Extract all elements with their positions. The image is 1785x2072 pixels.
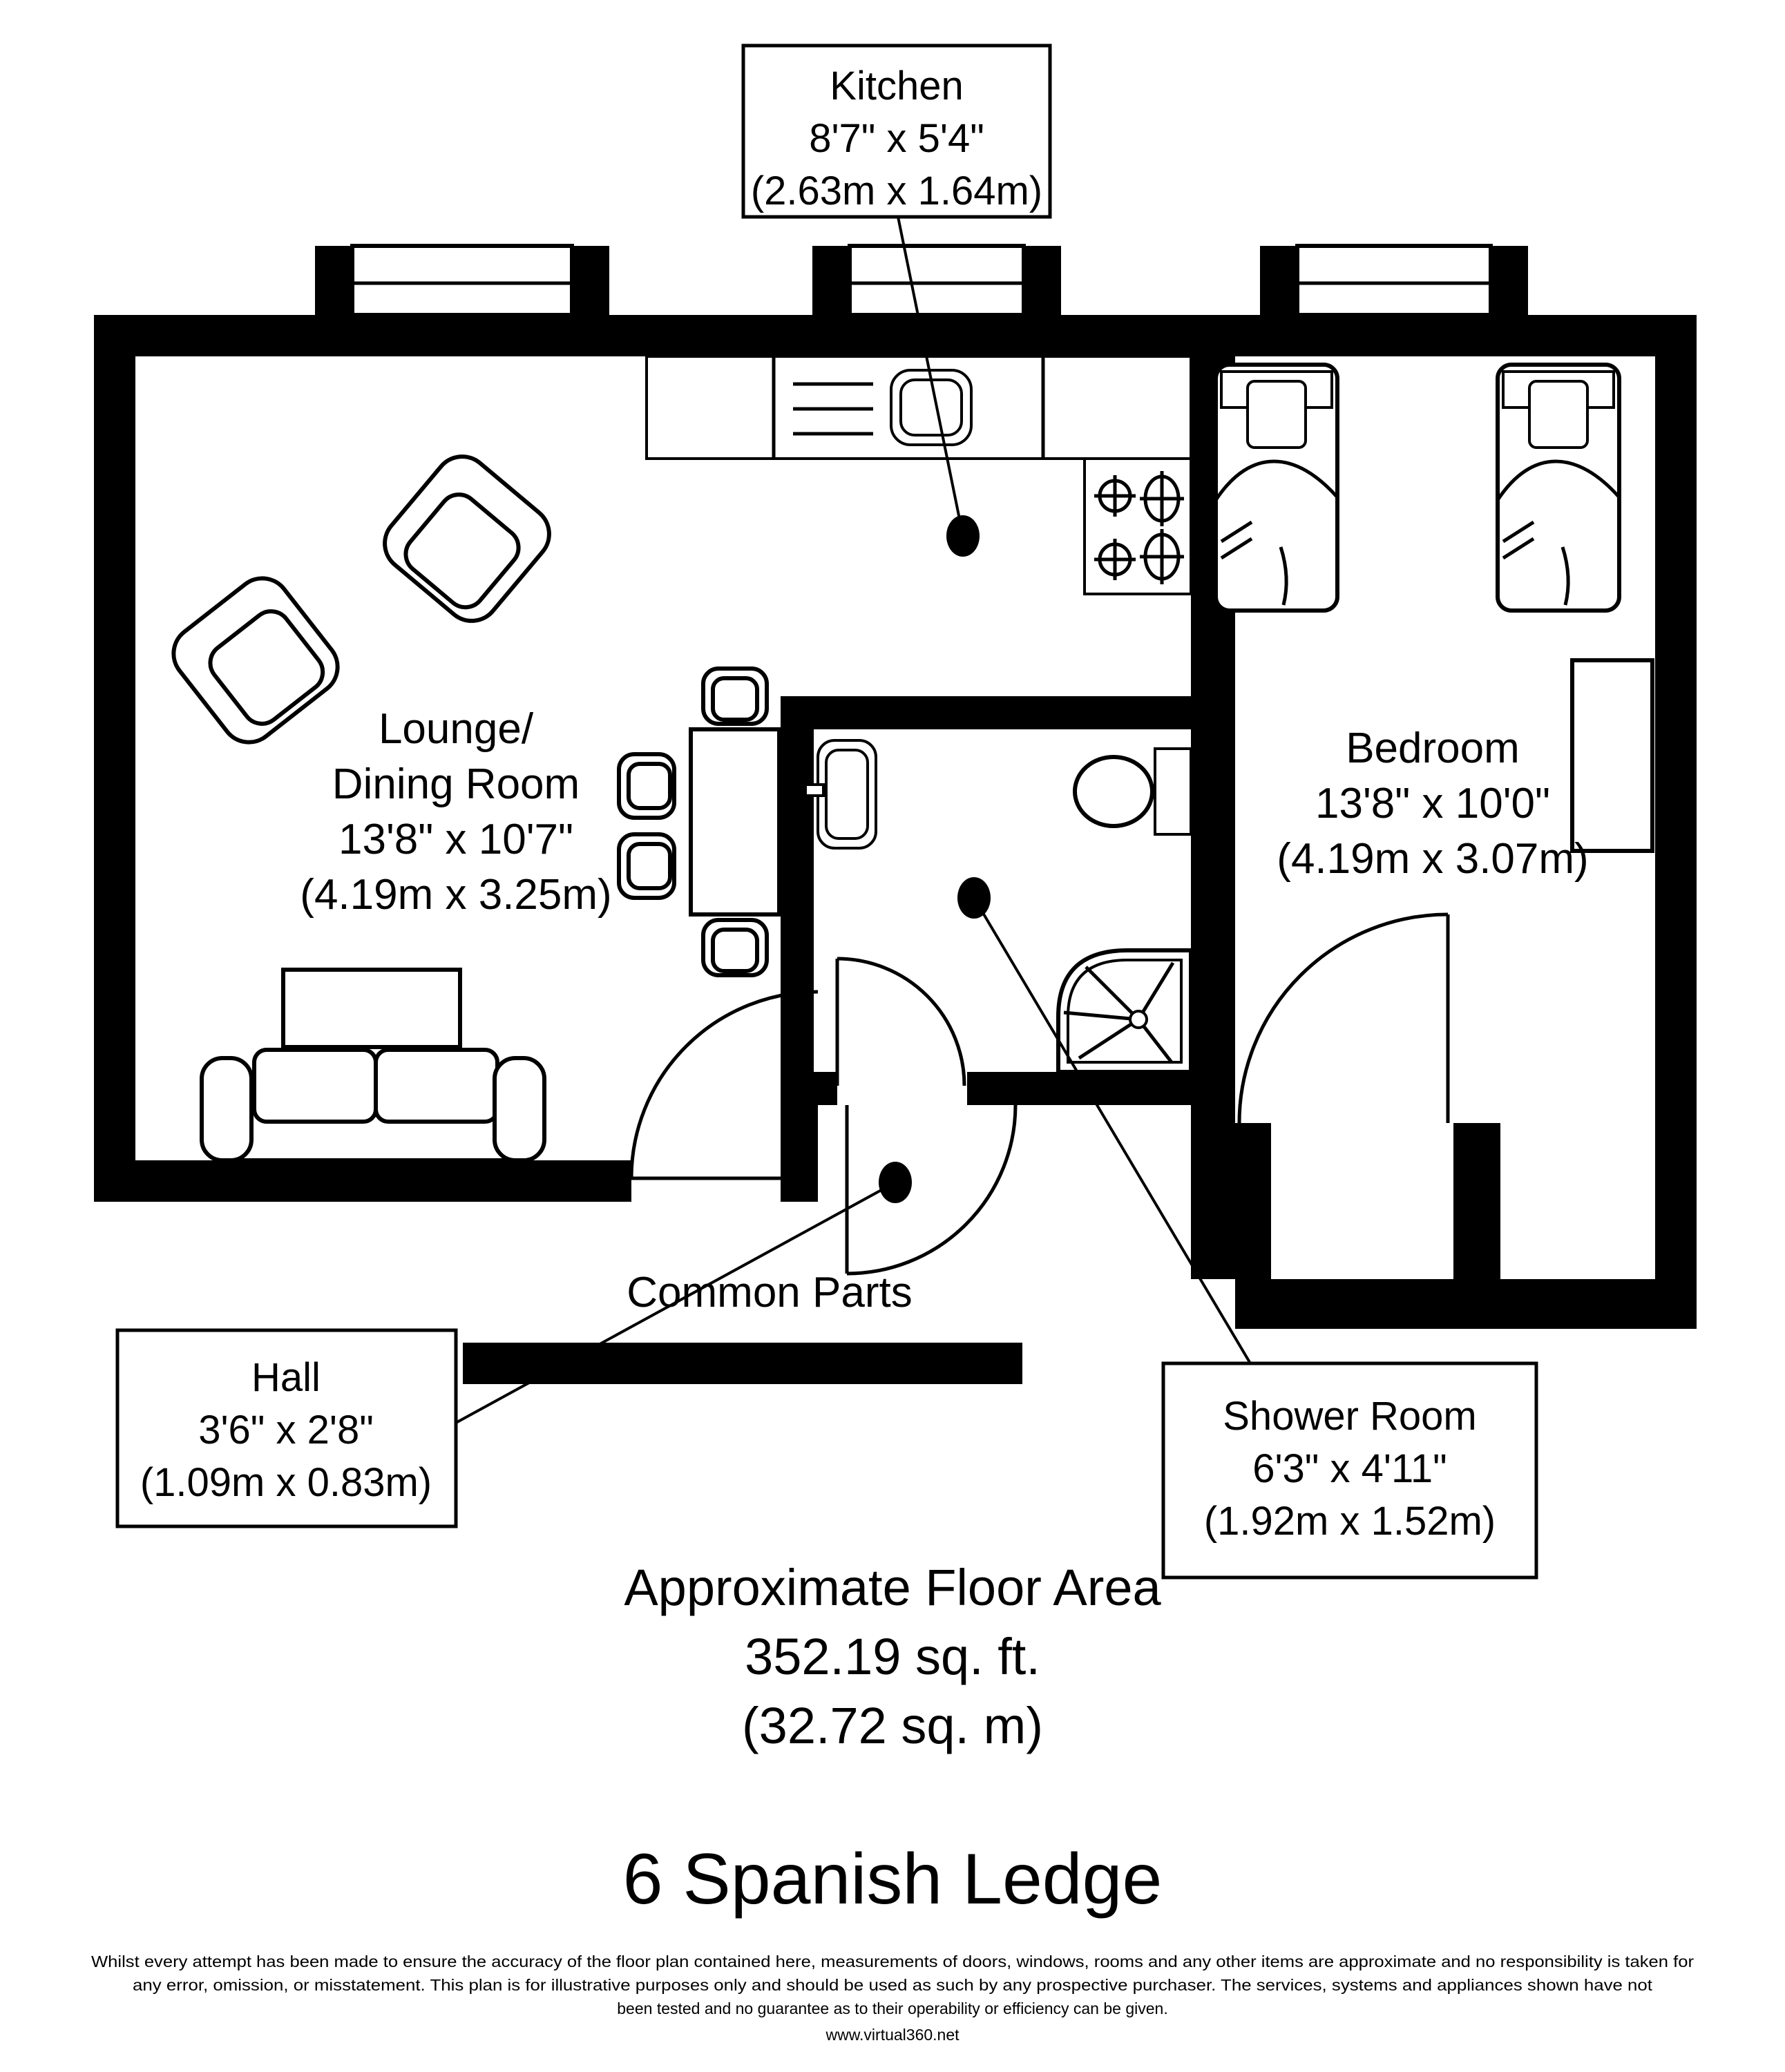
shower-label-metric: (1.92m x 1.52m) bbox=[1204, 1499, 1496, 1544]
wall-shower-top bbox=[781, 696, 1235, 729]
toilet bbox=[1075, 749, 1191, 834]
kitchen-callout-dot bbox=[946, 515, 980, 557]
floor-area-line2: 352.19 sq. ft. bbox=[745, 1628, 1040, 1685]
floorplan-page: Kitchen 8'7" x 5'4" (2.63m x 1.64m) Hall… bbox=[0, 0, 1785, 2072]
bedroom-label-imperial: 13'8" x 10'0" bbox=[1315, 780, 1550, 827]
wardrobe bbox=[1572, 660, 1652, 851]
disclaimer-line1: Whilst every attempt has been made to en… bbox=[91, 1953, 1694, 1970]
window-pillar bbox=[572, 246, 609, 318]
wall-top bbox=[94, 315, 1697, 356]
dining-chair bbox=[703, 669, 767, 724]
dining-chair bbox=[703, 920, 767, 975]
shower-callout-dot bbox=[957, 877, 991, 919]
sofa-arm bbox=[202, 1058, 251, 1160]
shower-room-fixtures bbox=[797, 740, 1191, 1072]
chair-seat bbox=[629, 844, 670, 888]
dining-table bbox=[691, 729, 779, 914]
website-url: www.virtual360.net bbox=[825, 2026, 960, 2044]
sofa-arm bbox=[495, 1058, 544, 1160]
floor-area-line3: (32.72 sq. m) bbox=[742, 1697, 1043, 1754]
footer: Approximate Floor Area 352.19 sq. ft. (3… bbox=[91, 1559, 1694, 2044]
coffee-table bbox=[283, 970, 460, 1047]
wall-right bbox=[1655, 315, 1697, 1329]
shower-label-name: Shower Room bbox=[1223, 1394, 1476, 1439]
dining-chair bbox=[619, 754, 674, 818]
bedroom-label-metric: (4.19m x 3.07m) bbox=[1277, 835, 1588, 883]
bed-pillow bbox=[1248, 381, 1306, 448]
single-bed bbox=[1498, 365, 1619, 611]
armchair bbox=[374, 445, 560, 632]
chair-seat bbox=[713, 678, 757, 720]
kitchen-label-name: Kitchen bbox=[830, 64, 963, 108]
wall-lounge-bottom bbox=[94, 1160, 631, 1202]
chair-seat bbox=[629, 764, 670, 808]
bedroom-window bbox=[1297, 246, 1491, 315]
bedroom-door-swing bbox=[1239, 914, 1448, 1123]
kitchen-label-imperial: 8'7" x 5'4" bbox=[809, 116, 984, 161]
kitchen-fixtures bbox=[647, 356, 1191, 594]
sofa-cushion bbox=[376, 1050, 497, 1122]
armchair bbox=[162, 567, 349, 754]
window-pillar bbox=[315, 246, 352, 318]
shower-label-imperial: 6'3" x 4'11" bbox=[1252, 1446, 1447, 1491]
shower-tray bbox=[1058, 950, 1191, 1072]
lounge-label-imperial: 13'8" x 10'7" bbox=[338, 816, 573, 863]
room-labels: Lounge/ Dining Room 13'8" x 10'7" (4.19m… bbox=[300, 705, 1588, 1316]
disclaimer-line3: been tested and no guarantee as to their… bbox=[617, 1999, 1167, 2017]
sink-basin-inner bbox=[901, 380, 962, 435]
shower-drain bbox=[1130, 1011, 1147, 1028]
single-bed bbox=[1216, 365, 1337, 611]
page-title: 6 Spanish Ledge bbox=[623, 1839, 1163, 1919]
lounge-window bbox=[352, 246, 572, 315]
wall-hall-stub bbox=[781, 1105, 818, 1202]
wall-shower-left bbox=[781, 696, 814, 1105]
sofa bbox=[202, 1050, 544, 1160]
wall-left bbox=[94, 315, 135, 1202]
hob-unit bbox=[1085, 459, 1191, 594]
window-pillar bbox=[1491, 246, 1528, 318]
toilet-cistern bbox=[1155, 749, 1191, 834]
chair-seat bbox=[713, 930, 757, 971]
window-pillar bbox=[1024, 246, 1061, 318]
wall-vestibule-left bbox=[1191, 1123, 1271, 1279]
wall-vestibule-right bbox=[1453, 1123, 1500, 1279]
wall-common-parts bbox=[463, 1343, 1022, 1384]
dining-chair bbox=[619, 834, 674, 898]
shower-door-swing bbox=[837, 959, 964, 1086]
hall-door-swing bbox=[847, 1105, 1015, 1274]
wall-shower-bottom-left bbox=[781, 1072, 837, 1105]
window-pillar bbox=[812, 246, 850, 318]
hall-label-imperial: 3'6" x 2'8" bbox=[198, 1408, 374, 1452]
hall-callout-dot bbox=[879, 1162, 912, 1203]
basin-inner bbox=[826, 750, 868, 838]
bedroom-label-name: Bedroom bbox=[1346, 725, 1520, 772]
kitchen-label-metric: (2.63m x 1.64m) bbox=[751, 169, 1042, 213]
bed-pillow bbox=[1529, 381, 1587, 448]
windows bbox=[352, 246, 1491, 315]
basin-tap bbox=[805, 785, 823, 796]
common-parts-label: Common Parts bbox=[627, 1269, 912, 1316]
lounge-label-line1: Lounge/ bbox=[379, 705, 534, 753]
hall-label-metric: (1.09m x 0.83m) bbox=[140, 1460, 432, 1505]
floorplan-drawing: Kitchen 8'7" x 5'4" (2.63m x 1.64m) Hall… bbox=[0, 0, 1785, 2072]
disclaimer-line2: any error, omission, or misstatement. Th… bbox=[133, 1976, 1653, 1994]
bedroom-furniture bbox=[1216, 365, 1652, 851]
wall-bedroom-bottom bbox=[1235, 1279, 1697, 1329]
window-pillar bbox=[1260, 246, 1297, 318]
lounge-label-metric: (4.19m x 3.25m) bbox=[300, 871, 611, 919]
sofa-cushion bbox=[254, 1050, 376, 1122]
kitchen-window bbox=[850, 246, 1024, 315]
toilet-bowl bbox=[1075, 757, 1152, 826]
hall-label-name: Hall bbox=[251, 1355, 321, 1400]
floor-area-line1: Approximate Floor Area bbox=[624, 1559, 1161, 1616]
lounge-label-line2: Dining Room bbox=[332, 760, 580, 808]
